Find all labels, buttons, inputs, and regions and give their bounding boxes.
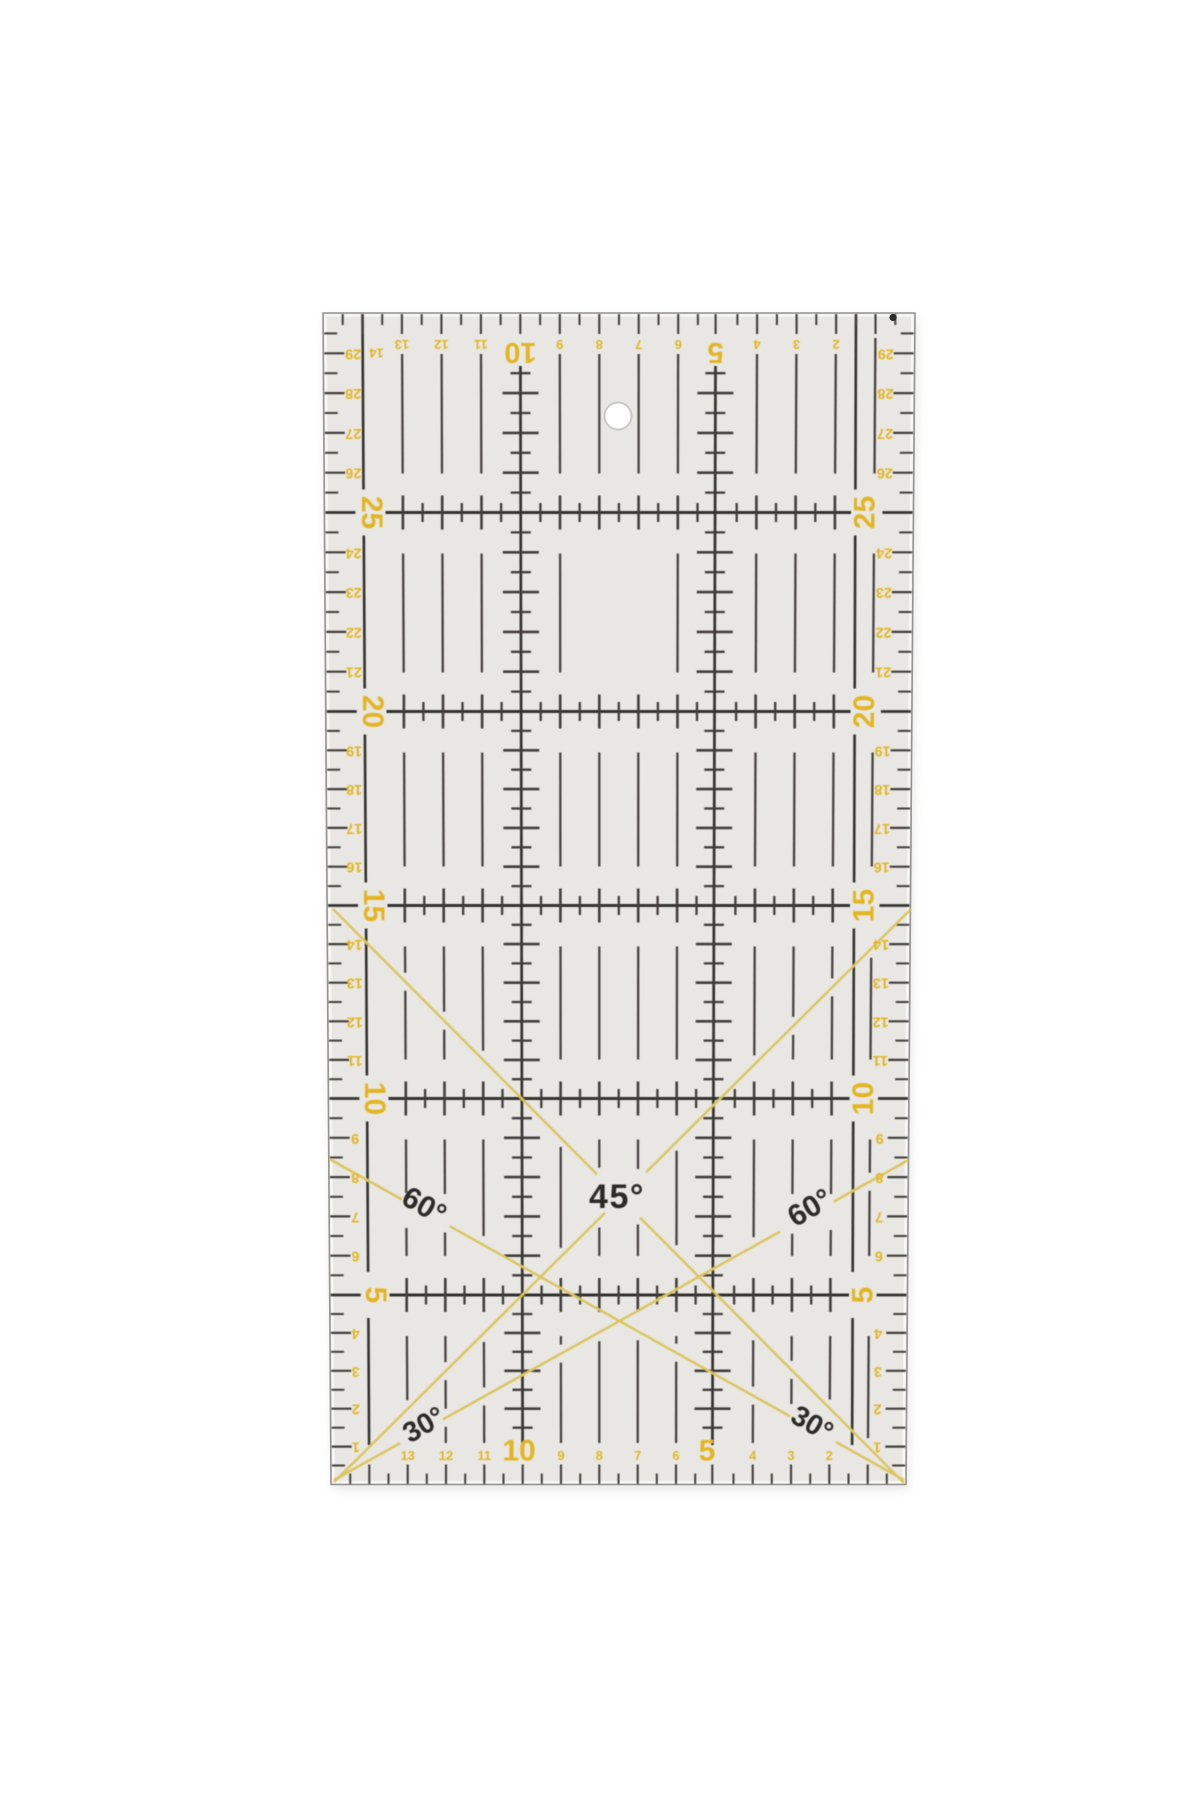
svg-text:13: 13: [347, 975, 363, 991]
svg-text:10: 10: [502, 1435, 535, 1468]
svg-text:11: 11: [474, 337, 488, 352]
svg-text:2: 2: [832, 337, 839, 352]
svg-text:27: 27: [877, 425, 893, 441]
svg-text:5: 5: [847, 1287, 880, 1304]
svg-text:15: 15: [848, 889, 881, 922]
svg-text:7: 7: [875, 1208, 883, 1224]
svg-text:13: 13: [400, 1448, 414, 1463]
svg-text:1: 1: [873, 1439, 881, 1455]
svg-text:18: 18: [346, 781, 362, 797]
svg-text:17: 17: [346, 820, 362, 836]
svg-text:12: 12: [434, 337, 448, 352]
svg-text:21: 21: [346, 664, 362, 680]
svg-text:10: 10: [504, 336, 536, 368]
svg-text:9: 9: [556, 337, 563, 352]
svg-text:8: 8: [351, 1169, 359, 1185]
svg-text:8: 8: [596, 1448, 603, 1463]
svg-text:29: 29: [345, 345, 361, 361]
svg-text:27: 27: [345, 425, 361, 441]
svg-text:7: 7: [634, 1448, 641, 1463]
svg-text:6: 6: [675, 337, 682, 352]
svg-text:28: 28: [345, 385, 361, 401]
svg-text:29: 29: [878, 345, 894, 361]
svg-text:6: 6: [875, 1248, 883, 1264]
svg-text:7: 7: [351, 1208, 359, 1224]
svg-text:4: 4: [753, 337, 761, 352]
svg-text:15: 15: [357, 889, 390, 922]
svg-text:14: 14: [873, 936, 889, 952]
svg-text:18: 18: [874, 781, 890, 797]
svg-text:12: 12: [873, 1013, 889, 1029]
svg-text:4: 4: [874, 1325, 882, 1341]
svg-text:5: 5: [359, 1287, 392, 1304]
svg-text:5: 5: [699, 1435, 716, 1468]
svg-text:17: 17: [874, 820, 890, 836]
svg-text:23: 23: [346, 584, 362, 600]
svg-text:3: 3: [874, 1363, 882, 1379]
svg-text:3: 3: [352, 1363, 360, 1379]
svg-text:8: 8: [596, 337, 603, 352]
svg-text:25: 25: [355, 496, 388, 529]
svg-text:20: 20: [848, 695, 881, 728]
svg-text:24: 24: [876, 544, 892, 560]
svg-text:6: 6: [672, 1448, 679, 1463]
svg-text:3: 3: [793, 337, 800, 352]
svg-text:4: 4: [352, 1325, 360, 1341]
svg-text:26: 26: [877, 465, 893, 481]
svg-text:26: 26: [345, 465, 361, 481]
svg-text:20: 20: [356, 695, 389, 728]
svg-text:9: 9: [876, 1130, 884, 1146]
svg-text:16: 16: [874, 859, 890, 875]
svg-text:25: 25: [849, 496, 882, 529]
svg-text:21: 21: [875, 664, 891, 680]
svg-text:22: 22: [876, 624, 892, 640]
svg-text:10: 10: [847, 1082, 880, 1115]
svg-text:8: 8: [875, 1169, 883, 1185]
svg-text:7: 7: [635, 337, 642, 352]
svg-text:16: 16: [346, 859, 362, 875]
svg-text:10: 10: [358, 1082, 391, 1115]
svg-text:14: 14: [347, 936, 363, 952]
svg-text:3: 3: [787, 1448, 794, 1463]
svg-text:22: 22: [346, 624, 362, 640]
svg-text:9: 9: [351, 1130, 359, 1146]
svg-text:23: 23: [876, 584, 892, 600]
svg-text:19: 19: [875, 742, 891, 758]
svg-text:13: 13: [873, 975, 889, 991]
svg-text:4: 4: [749, 1448, 757, 1463]
svg-text:11: 11: [347, 1052, 362, 1068]
svg-text:5: 5: [708, 336, 724, 368]
svg-text:2: 2: [826, 1448, 833, 1463]
svg-text:1: 1: [352, 1439, 360, 1455]
svg-text:11: 11: [477, 1448, 491, 1463]
svg-text:11: 11: [873, 1052, 888, 1068]
svg-text:19: 19: [346, 742, 362, 758]
svg-text:13: 13: [395, 337, 409, 352]
svg-text:12: 12: [439, 1448, 453, 1463]
svg-text:9: 9: [557, 1448, 564, 1463]
svg-text:6: 6: [351, 1248, 359, 1264]
svg-text:12: 12: [347, 1013, 363, 1029]
svg-text:2: 2: [352, 1401, 360, 1417]
svg-text:14: 14: [369, 346, 384, 361]
svg-text:45°: 45°: [589, 1178, 645, 1216]
svg-text:2: 2: [874, 1401, 882, 1417]
svg-text:24: 24: [346, 544, 362, 560]
svg-text:28: 28: [877, 385, 893, 401]
